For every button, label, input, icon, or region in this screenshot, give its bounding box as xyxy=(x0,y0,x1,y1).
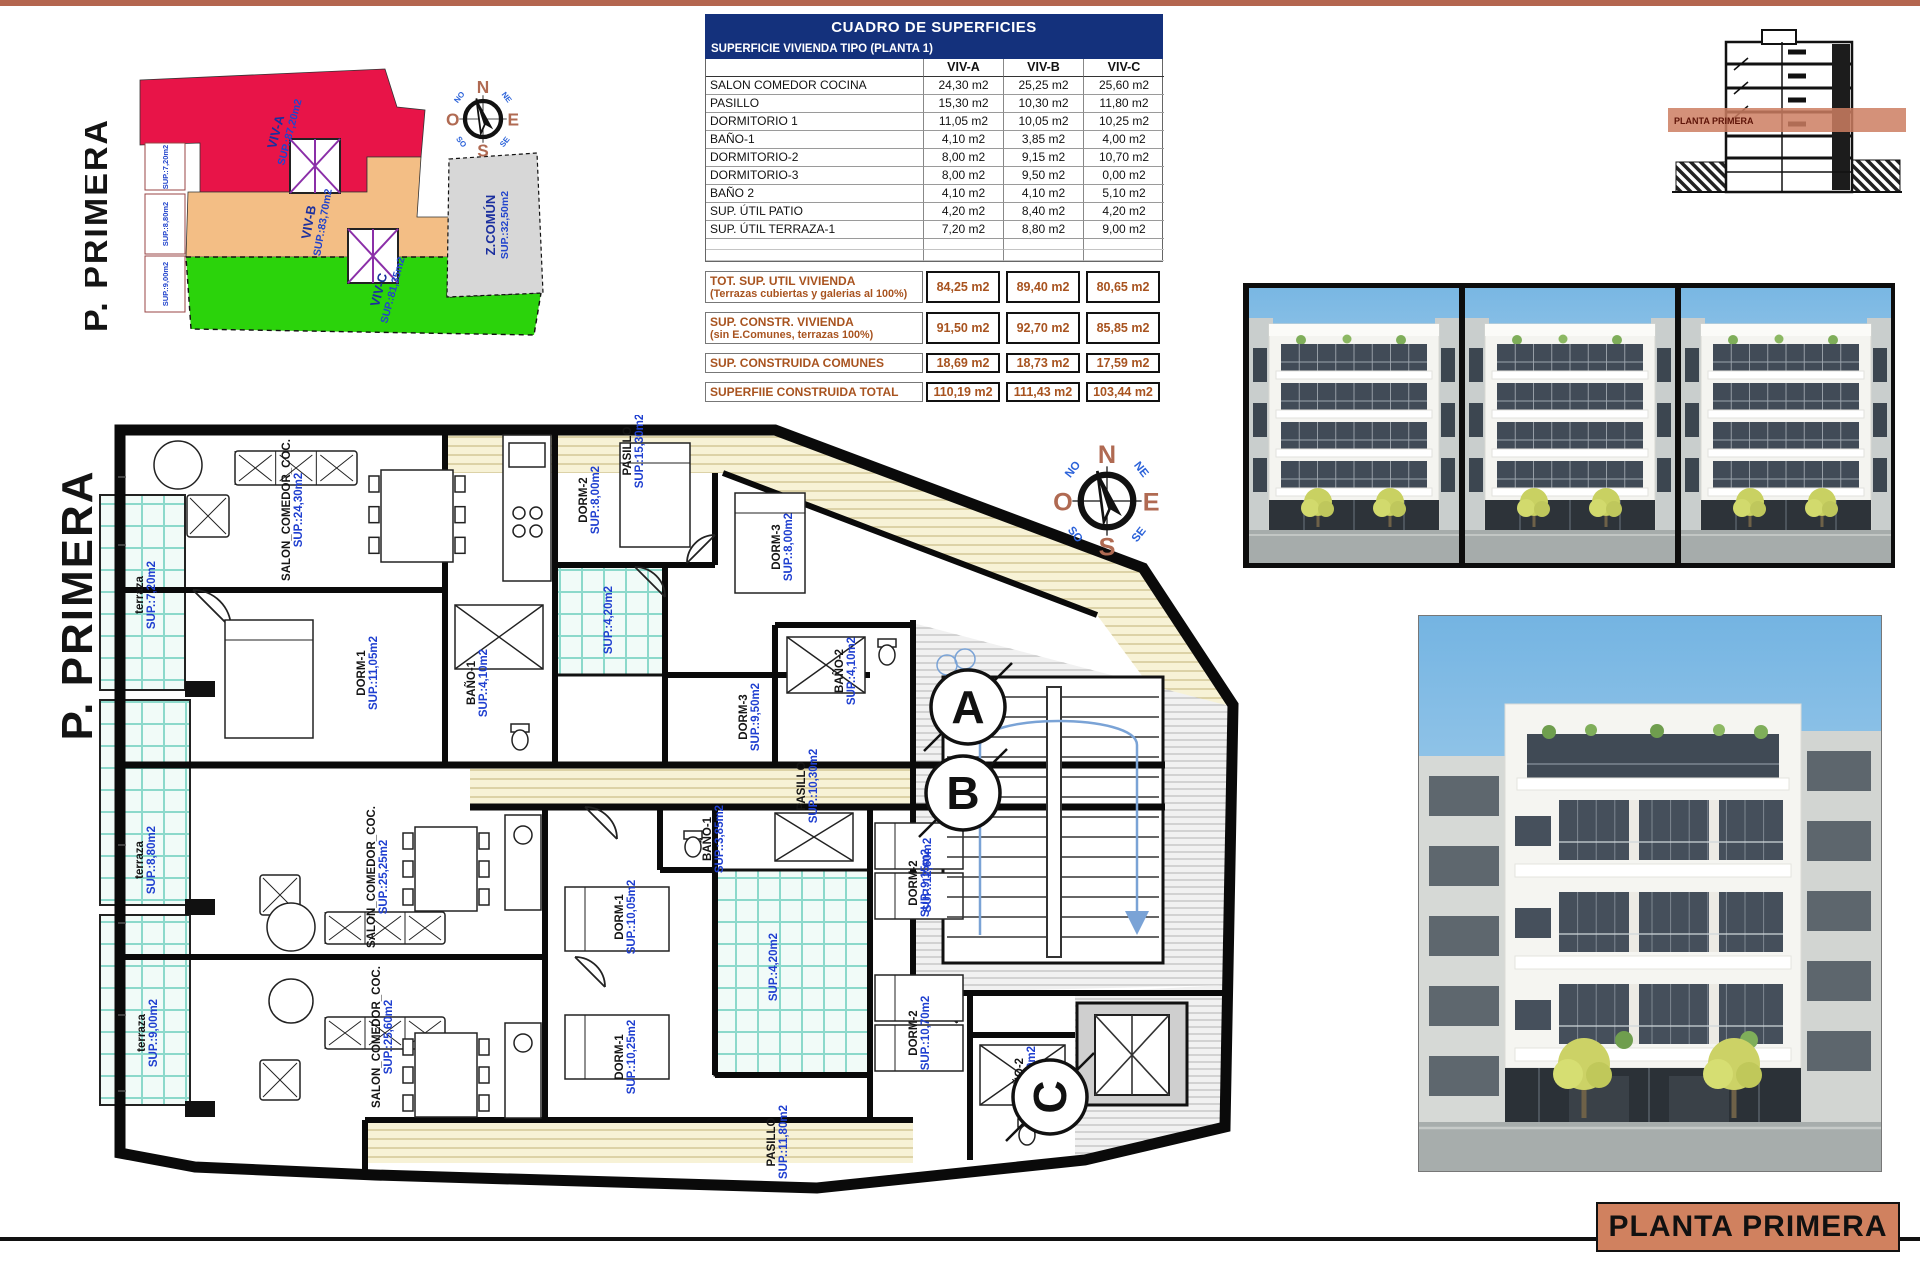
table-spacer xyxy=(706,250,924,261)
table-cell: 0,00 m2 xyxy=(1084,167,1164,185)
table-summary-value: 84,25 m2 xyxy=(926,271,1000,303)
svg-text:PASILLOSUP.:11,80m2: PASILLOSUP.:11,80m2 xyxy=(766,1105,790,1179)
table-cell: 9,15 m2 xyxy=(1004,149,1084,167)
svg-text:NO: NO xyxy=(452,90,466,105)
svg-text:NE: NE xyxy=(1131,460,1151,480)
svg-text:DORM-1SUP.:11,05m2: DORM-1SUP.:11,05m2 xyxy=(356,636,380,710)
table-cell: 4,20 m2 xyxy=(1084,203,1164,221)
svg-text:PASILLOSUP.:10,30m2: PASILLOSUP.:10,30m2 xyxy=(796,749,820,824)
table-summary-value: 92,70 m2 xyxy=(1006,312,1080,344)
table-cell: 5,10 m2 xyxy=(1084,185,1164,203)
table-column-header: VIV-A xyxy=(924,59,1004,77)
table-row-label: BAÑO-1 xyxy=(706,131,924,149)
svg-text:SALON_COMEDOR_COC.SUP.:25,60m2: SALON_COMEDOR_COC.SUP.:25,60m2 xyxy=(371,966,395,1108)
table-summary-label: SUP. CONSTRUIDA COMUNES xyxy=(705,353,923,373)
building-render-panel xyxy=(1465,288,1675,563)
svg-text:SUP.:9,00m2: SUP.:9,00m2 xyxy=(161,262,170,306)
table-summary-label: SUPERFIIE CONSTRUIDA TOTAL xyxy=(705,382,923,402)
table-spacer xyxy=(1004,250,1084,261)
svg-text:E: E xyxy=(1143,488,1160,516)
table-cell: 3,85 m2 xyxy=(1004,131,1084,149)
plan-sheet: P. PRIMERA VIV-ASUP.:87,20m2VIV-BSUP.:83… xyxy=(0,0,1920,1280)
svg-text:N: N xyxy=(1098,441,1116,469)
svg-text:SO: SO xyxy=(454,135,468,150)
table-spacer xyxy=(1084,239,1164,250)
table-spacer xyxy=(1084,250,1164,261)
building-section-drawing: PLANTA PRIMERA xyxy=(1662,12,1912,197)
svg-text:B: B xyxy=(946,767,979,819)
svg-text:DORM-3SUP.:9,50m2: DORM-3SUP.:9,50m2 xyxy=(738,683,762,751)
svg-text:S: S xyxy=(1099,534,1116,562)
top-accent-bar xyxy=(0,0,1920,6)
table-cell: 4,00 m2 xyxy=(1084,131,1164,149)
table-spacer xyxy=(924,239,1004,250)
table-corner xyxy=(706,59,924,77)
table-column-header: VIV-C xyxy=(1084,59,1164,77)
table-row-label: DORMITORIO-2 xyxy=(706,149,924,167)
table-cell: 8,00 m2 xyxy=(924,149,1004,167)
table-summary-value: 18,69 m2 xyxy=(926,353,1000,373)
table-summary-value: 110,19 m2 xyxy=(926,382,1000,402)
table-row-label: PASILLO xyxy=(706,95,924,113)
building-render-panel xyxy=(1249,288,1459,563)
table-summary-value: 18,73 m2 xyxy=(1006,353,1080,373)
table-summary-row: SUP. CONSTR. VIVIENDA(sin E.Comunes, ter… xyxy=(705,312,1163,344)
svg-text:NO: NO xyxy=(1063,459,1083,480)
areas-table-summary: TOT. SUP. UTIL VIVIENDA(Terrazas cubiert… xyxy=(705,271,1163,402)
key-plan-title: P. PRIMERA xyxy=(85,118,115,332)
table-cell: 11,80 m2 xyxy=(1084,95,1164,113)
table-summary-value: 91,50 m2 xyxy=(926,312,1000,344)
table-row-label: SALON COMEDOR COCINA xyxy=(706,77,924,95)
areas-table-grid: VIV-AVIV-BVIV-CSALON COMEDOR COCINA24,30… xyxy=(705,59,1163,262)
table-spacer xyxy=(706,239,924,250)
table-cell: 24,30 m2 xyxy=(924,77,1004,95)
svg-text:N: N xyxy=(477,77,489,97)
svg-text:S: S xyxy=(477,140,489,160)
table-cell: 4,20 m2 xyxy=(924,203,1004,221)
svg-text:SE: SE xyxy=(1130,525,1149,545)
table-row-label: DORMITORIO-3 xyxy=(706,167,924,185)
svg-text:C: C xyxy=(1024,1080,1076,1113)
table-summary-value: 85,85 m2 xyxy=(1086,312,1160,344)
table-cell: 8,40 m2 xyxy=(1004,203,1084,221)
svg-text:BAÑO-1SUP.:3,85m2: BAÑO-1SUP.:3,85m2 xyxy=(701,805,726,873)
table-cell: 25,25 m2 xyxy=(1004,77,1084,95)
table-cell: 4,10 m2 xyxy=(1004,185,1084,203)
table-cell: 10,05 m2 xyxy=(1004,113,1084,131)
table-row-label: SUP. ÚTIL TERRAZA-1 xyxy=(706,221,924,239)
table-cell: 9,00 m2 xyxy=(1084,221,1164,239)
table-summary-value: 111,43 m2 xyxy=(1006,382,1080,402)
svg-text:SE: SE xyxy=(498,135,512,149)
table-cell: 9,50 m2 xyxy=(1004,167,1084,185)
svg-text:SUP.:8,80m2: SUP.:8,80m2 xyxy=(161,202,170,246)
table-summary-row: SUP. CONSTRUIDA COMUNES18,69 m218,73 m21… xyxy=(705,353,1163,373)
table-row-label: BAÑO 2 xyxy=(706,185,924,203)
svg-text:SUP.:32,50m2: SUP.:32,50m2 xyxy=(499,191,511,259)
table-summary-value: 17,59 m2 xyxy=(1086,353,1160,373)
table-row-label: SUP. ÚTIL PATIO xyxy=(706,203,924,221)
key-plan: P. PRIMERA VIV-ASUP.:87,20m2VIV-BSUP.:83… xyxy=(85,55,585,365)
svg-text:SUP.:4,20m2: SUP.:4,20m2 xyxy=(768,933,780,1001)
table-column-header: VIV-B xyxy=(1004,59,1084,77)
svg-text:SUP.:12,60m2: SUP.:12,60m2 xyxy=(922,838,934,913)
table-cell: 10,70 m2 xyxy=(1084,149,1164,167)
table-cell: 11,05 m2 xyxy=(924,113,1004,131)
building-render-large xyxy=(1418,615,1882,1172)
table-spacer xyxy=(924,250,1004,261)
svg-text:A: A xyxy=(951,681,984,733)
table-summary-row: SUPERFIIE CONSTRUIDA TOTAL110,19 m2111,4… xyxy=(705,382,1163,402)
table-cell: 4,10 m2 xyxy=(924,185,1004,203)
table-summary-label: TOT. SUP. UTIL VIVIENDA(Terrazas cubiert… xyxy=(705,271,923,303)
areas-table-subtitle: SUPERFICIE VIVIENDA TIPO (PLANTA 1) xyxy=(705,40,1163,59)
sheet-title: PLANTA PRIMERA xyxy=(1609,1210,1888,1244)
table-spacer xyxy=(1004,239,1084,250)
table-summary-value: 80,65 m2 xyxy=(1086,271,1160,303)
table-cell: 25,60 m2 xyxy=(1084,77,1164,95)
table-summary-row: TOT. SUP. UTIL VIVIENDA(Terrazas cubiert… xyxy=(705,271,1163,303)
building-renders-strip xyxy=(1243,283,1895,568)
sheet-title-block: PLANTA PRIMERA xyxy=(1596,1202,1900,1252)
table-cell: 15,30 m2 xyxy=(924,95,1004,113)
section-band-label: PLANTA PRIMERA xyxy=(1674,116,1754,126)
svg-text:E: E xyxy=(507,109,519,129)
table-cell: 10,30 m2 xyxy=(1004,95,1084,113)
table-cell: 7,20 m2 xyxy=(924,221,1004,239)
building-render-panel xyxy=(1681,288,1891,563)
compass-rose: N E S O NE NO SE SO xyxy=(446,77,519,160)
table-cell: 8,00 m2 xyxy=(924,167,1004,185)
table-summary-value: 103,44 m2 xyxy=(1086,382,1160,402)
table-cell: 10,25 m2 xyxy=(1084,113,1164,131)
svg-text:SUP.:7,20m2: SUP.:7,20m2 xyxy=(161,145,170,189)
table-summary-value: 89,40 m2 xyxy=(1006,271,1080,303)
table-row-label: DORMITORIO 1 xyxy=(706,113,924,131)
svg-text:O: O xyxy=(446,109,459,129)
svg-text:SUP.:4,20m2: SUP.:4,20m2 xyxy=(603,586,615,654)
areas-table: CUADRO DE SUPERFICIES SUPERFICIE VIVIEND… xyxy=(705,14,1163,402)
table-cell: 4,10 m2 xyxy=(924,131,1004,149)
svg-text:DORM-2SUP.:8,00m2: DORM-2SUP.:8,00m2 xyxy=(578,466,602,534)
svg-text:Z.COMÚN: Z.COMÚN xyxy=(483,195,498,256)
table-cell: 8,80 m2 xyxy=(1004,221,1084,239)
svg-text:O: O xyxy=(1053,488,1073,516)
floor-plan: SALON_COMEDOR_COC.SUP.:24,30m2terrazaSUP… xyxy=(75,415,1240,1195)
svg-text:NE: NE xyxy=(500,90,514,104)
areas-table-title: CUADRO DE SUPERFICIES xyxy=(705,14,1163,40)
table-summary-label: SUP. CONSTR. VIVIENDA(sin E.Comunes, ter… xyxy=(705,312,923,344)
